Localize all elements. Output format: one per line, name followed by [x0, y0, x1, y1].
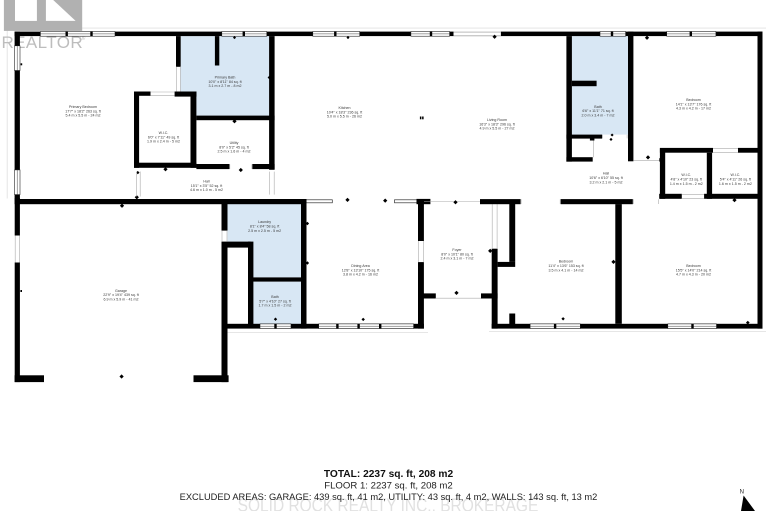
- svg-text:N: N: [740, 489, 744, 495]
- svg-text:TOTAL: 2237 sq. ft, 208 m2: TOTAL: 2237 sq. ft, 208 m2: [324, 469, 454, 480]
- svg-text:FLOOR 1: 2237 sq. ft, 208 m2: FLOOR 1: 2237 sq. ft, 208 m2: [324, 481, 453, 492]
- svg-text:EXCLUDED AREAS: GARAGE: 439 sq: EXCLUDED AREAS: GARAGE: 439 sq. ft, 41 m…: [180, 492, 598, 502]
- svg-text:Primary Bedroom17'7" x 18'2" 2: Primary Bedroom17'7" x 18'2" 263 sq. ft5…: [65, 105, 101, 118]
